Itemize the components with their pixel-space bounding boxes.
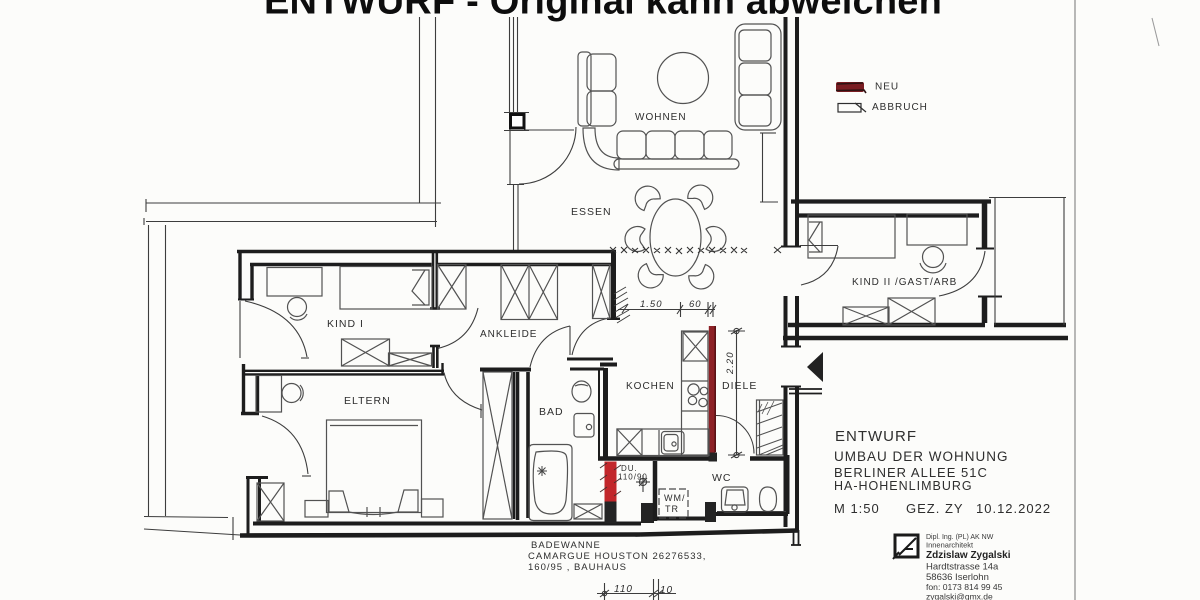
svg-text:KOCHEN: KOCHEN	[626, 381, 675, 392]
svg-text:ANKLEIDE: ANKLEIDE	[480, 329, 537, 340]
svg-text:ESSEN: ESSEN	[571, 206, 612, 218]
svg-text:WM/: WM/	[664, 493, 686, 503]
svg-text:WC: WC	[712, 472, 732, 484]
svg-text:160/95 , BAUHAUS: 160/95 , BAUHAUS	[528, 562, 627, 573]
svg-text:NEU: NEU	[875, 82, 899, 93]
svg-text:1.50: 1.50	[640, 299, 663, 310]
svg-text:zygalski@gmx.de: zygalski@gmx.de	[926, 592, 993, 600]
svg-text:WOHNEN: WOHNEN	[635, 112, 687, 123]
svg-text:110: 110	[614, 584, 633, 595]
svg-text:GEZ. ZY: GEZ. ZY	[906, 501, 964, 516]
svg-text:Innenarchitekt: Innenarchitekt	[926, 541, 974, 550]
svg-text:ENTWURF: ENTWURF	[835, 428, 917, 445]
svg-text:BAD: BAD	[539, 406, 564, 418]
svg-text:Zdzislaw Zygalski: Zdzislaw Zygalski	[926, 550, 1011, 561]
svg-text:DIELE: DIELE	[722, 380, 757, 392]
svg-text:BERLINER ALLEE 51C: BERLINER ALLEE 51C	[834, 465, 988, 480]
svg-text:10: 10	[660, 585, 673, 596]
svg-text:CAMARGUE HOUSTON 26276533,: CAMARGUE HOUSTON 26276533,	[528, 551, 706, 562]
svg-text:ENTWURF - Original kann abweic: ENTWURF - Original kann abweichen	[264, 0, 942, 23]
svg-text:M 1:50: M 1:50	[834, 501, 880, 516]
svg-text:KIND II /GAST/ARB: KIND II /GAST/ARB	[852, 277, 957, 288]
svg-text:Hardtstrasse 14a: Hardtstrasse 14a	[926, 562, 999, 573]
svg-text:fon: 0173 814 99 45: fon: 0173 814 99 45	[926, 582, 1003, 592]
svg-text:TR: TR	[665, 504, 679, 514]
svg-text:HA-HOHENLIMBURG: HA-HOHENLIMBURG	[834, 479, 973, 493]
svg-text:BADEWANNE: BADEWANNE	[531, 540, 601, 551]
svg-text:ELTERN: ELTERN	[344, 395, 391, 407]
svg-text:KIND I: KIND I	[327, 318, 364, 330]
svg-text:10.12.2022: 10.12.2022	[976, 501, 1051, 516]
svg-text:ABBRUCH: ABBRUCH	[872, 102, 928, 113]
svg-text:60: 60	[689, 299, 702, 310]
svg-text:2.20: 2.20	[725, 352, 736, 376]
svg-text:UMBAU DER WOHNUNG: UMBAU DER WOHNUNG	[834, 449, 1009, 464]
svg-text:110/90: 110/90	[618, 473, 648, 482]
